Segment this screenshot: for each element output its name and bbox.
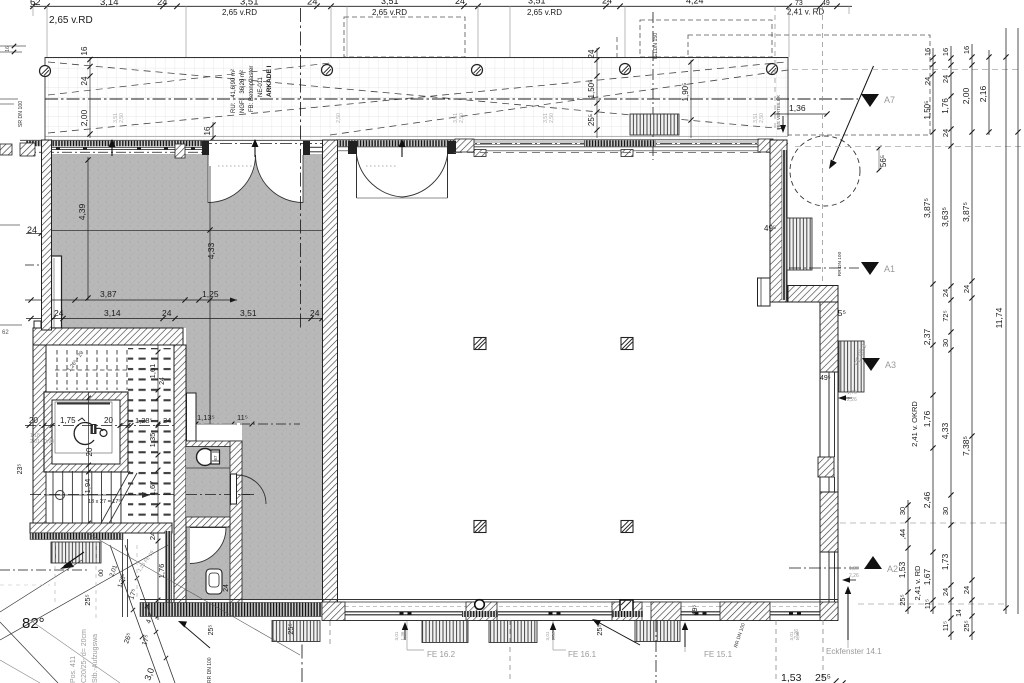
svg-text:1,53: 1,53 bbox=[897, 561, 907, 578]
svg-text:16: 16 bbox=[962, 46, 971, 54]
svg-text:1,76: 1,76 bbox=[157, 564, 166, 579]
svg-text:1,35: 1,35 bbox=[148, 433, 157, 448]
svg-text:3,87⁵: 3,87⁵ bbox=[922, 198, 932, 218]
svg-text:Eckfenster 14.1: Eckfenster 14.1 bbox=[826, 647, 882, 656]
svg-text:FBS VERTEILER: FBS VERTEILER bbox=[776, 94, 781, 130]
svg-text:Stb.-Aufzugswa: Stb.-Aufzugswa bbox=[92, 634, 99, 683]
svg-text:62: 62 bbox=[2, 330, 9, 336]
svg-text:72⁵: 72⁵ bbox=[941, 310, 950, 321]
svg-text:24: 24 bbox=[962, 586, 971, 594]
svg-text:2,65 v.RD: 2,65 v.RD bbox=[222, 8, 257, 17]
svg-text:25⁵: 25⁵ bbox=[83, 594, 92, 605]
svg-text:24: 24 bbox=[923, 77, 932, 85]
svg-text:2,65 v.RD: 2,65 v.RD bbox=[372, 8, 407, 17]
svg-text:67: 67 bbox=[213, 455, 218, 461]
svg-text:24: 24 bbox=[941, 289, 950, 297]
svg-text:30: 30 bbox=[941, 507, 950, 515]
svg-text:TELDN 150: TELDN 150 bbox=[653, 33, 659, 60]
svg-text:25⁵: 25⁵ bbox=[587, 114, 596, 126]
svg-text:2,50: 2,50 bbox=[459, 113, 465, 123]
svg-text:24: 24 bbox=[962, 285, 971, 293]
svg-text:14: 14 bbox=[956, 609, 963, 617]
svg-text:1,76: 1,76 bbox=[847, 390, 857, 396]
svg-text:1,61: 1,61 bbox=[148, 364, 157, 379]
svg-text:11,74: 11,74 bbox=[994, 307, 1004, 328]
svg-text:82°: 82° bbox=[22, 615, 45, 632]
svg-text:FE 16.1: FE 16.1 bbox=[568, 650, 597, 659]
svg-text:1,36: 1,36 bbox=[551, 631, 556, 640]
svg-text:4,24: 4,24 bbox=[686, 0, 704, 6]
svg-text:4,33: 4,33 bbox=[940, 422, 950, 439]
svg-text:2,00: 2,00 bbox=[79, 109, 89, 126]
svg-text:2,00: 2,00 bbox=[961, 87, 971, 104]
svg-text:11⁵: 11⁵ bbox=[943, 621, 950, 631]
svg-text:C20/25- d= 20cm: C20/25- d= 20cm bbox=[81, 629, 88, 683]
svg-text:1,73: 1,73 bbox=[940, 553, 950, 570]
svg-text:2,50: 2,50 bbox=[336, 113, 342, 123]
svg-text:A1: A1 bbox=[884, 264, 895, 274]
svg-text:RU: 41,6|90 m²: RU: 41,6|90 m² bbox=[231, 69, 237, 113]
svg-text:1,75: 1,75 bbox=[60, 416, 76, 425]
svg-text:A3: A3 bbox=[885, 360, 896, 370]
svg-text:25⁵: 25⁵ bbox=[962, 620, 971, 631]
svg-text:3,51: 3,51 bbox=[528, 0, 546, 6]
svg-text:1,76: 1,76 bbox=[941, 98, 950, 114]
svg-text:25⁵: 25⁵ bbox=[898, 594, 907, 605]
svg-text:1,67: 1,67 bbox=[922, 568, 932, 585]
svg-text:62: 62 bbox=[30, 0, 41, 8]
svg-text:1,50⁵: 1,50⁵ bbox=[923, 101, 932, 120]
svg-text:16: 16 bbox=[941, 48, 950, 56]
svg-text:16: 16 bbox=[923, 48, 932, 56]
svg-text:24: 24 bbox=[163, 416, 171, 425]
svg-text:2,50: 2,50 bbox=[549, 113, 555, 123]
svg-text:3,87⁵: 3,87⁵ bbox=[961, 202, 971, 222]
svg-text:2,41 v. OKRD: 2,41 v. OKRD bbox=[910, 401, 919, 447]
svg-text:1,36: 1,36 bbox=[789, 103, 806, 113]
svg-text:FE 16.2: FE 16.2 bbox=[427, 650, 456, 659]
svg-text:1,36: 1,36 bbox=[400, 631, 405, 640]
svg-text:NGF: 36|26 m²: NGF: 36|26 m² bbox=[240, 70, 246, 113]
svg-text:2,50: 2,50 bbox=[759, 113, 765, 123]
svg-text:3,51: 3,51 bbox=[240, 308, 257, 318]
svg-text:Pos. 411: Pos. 411 bbox=[70, 656, 77, 683]
svg-text:24: 24 bbox=[941, 75, 950, 83]
svg-text:24: 24 bbox=[587, 49, 596, 58]
svg-text:24: 24 bbox=[307, 0, 318, 8]
svg-text:16: 16 bbox=[5, 46, 11, 52]
svg-text:,44: ,44 bbox=[898, 529, 907, 539]
svg-text:1,36: 1,36 bbox=[795, 631, 800, 640]
svg-text:2,50: 2,50 bbox=[119, 113, 125, 123]
svg-text:1,13⁵: 1,13⁵ bbox=[197, 413, 215, 422]
svg-text:NE-011: NE-011 bbox=[258, 76, 264, 97]
svg-text:56⁵: 56⁵ bbox=[879, 155, 888, 167]
svg-text:3,51: 3,51 bbox=[381, 0, 399, 6]
svg-text:2,41 v. RD: 2,41 v. RD bbox=[913, 565, 922, 600]
svg-text:SR DN 100: SR DN 100 bbox=[18, 101, 24, 127]
svg-text:RR DN 100: RR DN 100 bbox=[837, 251, 843, 276]
svg-text:2,46: 2,46 bbox=[922, 491, 932, 508]
svg-text:2,65 v.RD: 2,65 v.RD bbox=[49, 15, 93, 26]
svg-text:24: 24 bbox=[941, 588, 950, 596]
svg-text:20: 20 bbox=[85, 447, 94, 456]
svg-text:24: 24 bbox=[54, 308, 64, 318]
svg-text:00: 00 bbox=[98, 569, 105, 577]
svg-text:A7: A7 bbox=[884, 95, 895, 105]
svg-text:24: 24 bbox=[223, 584, 230, 592]
svg-text:2,37: 2,37 bbox=[922, 328, 932, 345]
svg-text:3,51: 3,51 bbox=[240, 0, 259, 8]
svg-text:FB: Betonpflaster: FB: Betonpflaster bbox=[249, 66, 255, 112]
svg-text:1,76: 1,76 bbox=[922, 410, 932, 427]
svg-text:4,39: 4,39 bbox=[77, 203, 87, 220]
svg-text:30: 30 bbox=[898, 507, 907, 515]
svg-text:2,65 v.RD: 2,65 v.RD bbox=[527, 8, 562, 17]
svg-text:FE 15.1: FE 15.1 bbox=[704, 650, 733, 659]
svg-text:24: 24 bbox=[159, 377, 166, 385]
svg-text:49⁵: 49⁵ bbox=[764, 224, 776, 233]
svg-text:1,94: 1,94 bbox=[83, 479, 92, 494]
svg-text:24: 24 bbox=[455, 0, 465, 6]
svg-text:4,33: 4,33 bbox=[206, 242, 216, 259]
svg-text:23⁵: 23⁵ bbox=[17, 464, 24, 475]
svg-text:73: 73 bbox=[795, 0, 803, 7]
svg-text:RR DN 100: RR DN 100 bbox=[207, 657, 213, 683]
svg-text:25⁵: 25⁵ bbox=[595, 624, 604, 635]
svg-text:24: 24 bbox=[602, 0, 612, 6]
svg-text:3,01: 3,01 bbox=[789, 631, 794, 640]
svg-text:7,38⁵: 7,38⁵ bbox=[961, 436, 971, 456]
svg-text:1,53: 1,53 bbox=[781, 672, 802, 683]
svg-text:2,41 v. RD: 2,41 v. RD bbox=[787, 8, 824, 17]
svg-text:20: 20 bbox=[29, 416, 38, 425]
svg-text:1,28⁵: 1,28⁵ bbox=[135, 416, 153, 425]
svg-text:2,01 - 0,93: 2,01 - 0,93 bbox=[30, 439, 54, 445]
svg-text:2,26: 2,26 bbox=[849, 573, 859, 579]
svg-text:49: 49 bbox=[822, 0, 830, 7]
svg-text:3,14: 3,14 bbox=[104, 308, 121, 318]
svg-text:16: 16 bbox=[80, 46, 89, 55]
svg-text:25⁵: 25⁵ bbox=[286, 623, 295, 634]
svg-text:2,16: 2,16 bbox=[978, 85, 988, 102]
svg-text:ARKADE I: ARKADE I bbox=[266, 65, 273, 97]
svg-text:1,25: 1,25 bbox=[202, 289, 219, 299]
svg-text:24: 24 bbox=[310, 308, 320, 318]
svg-text:30: 30 bbox=[941, 339, 950, 347]
svg-text:20: 20 bbox=[104, 416, 113, 425]
svg-text:1,80: 1,80 bbox=[849, 566, 859, 572]
svg-text:18 x 27 = 17⁵: 18 x 27 = 17⁵ bbox=[88, 498, 121, 505]
svg-text:3,01: 3,01 bbox=[394, 631, 399, 640]
svg-text:49⁵: 49⁵ bbox=[820, 375, 831, 382]
svg-text:25⁵: 25⁵ bbox=[815, 672, 831, 683]
svg-text:49⁵: 49⁵ bbox=[692, 605, 699, 616]
svg-text:24: 24 bbox=[941, 129, 950, 137]
svg-text:24: 24 bbox=[157, 0, 168, 8]
svg-text:3,87: 3,87 bbox=[100, 289, 117, 299]
svg-text:3,63⁵: 3,63⁵ bbox=[940, 207, 950, 227]
svg-text:11⁵: 11⁵ bbox=[237, 413, 248, 422]
svg-text:11⁵: 11⁵ bbox=[925, 599, 932, 609]
svg-text:24: 24 bbox=[162, 308, 172, 318]
svg-text:1,50⁵: 1,50⁵ bbox=[587, 80, 596, 99]
svg-text:1,67: 1,67 bbox=[148, 481, 157, 496]
svg-text:3,01: 3,01 bbox=[545, 631, 550, 640]
svg-text:25⁵: 25⁵ bbox=[208, 625, 215, 636]
svg-text:3,14: 3,14 bbox=[100, 0, 119, 8]
svg-text:24: 24 bbox=[80, 76, 89, 85]
svg-text:1,90⁵: 1,90⁵ bbox=[681, 83, 690, 102]
